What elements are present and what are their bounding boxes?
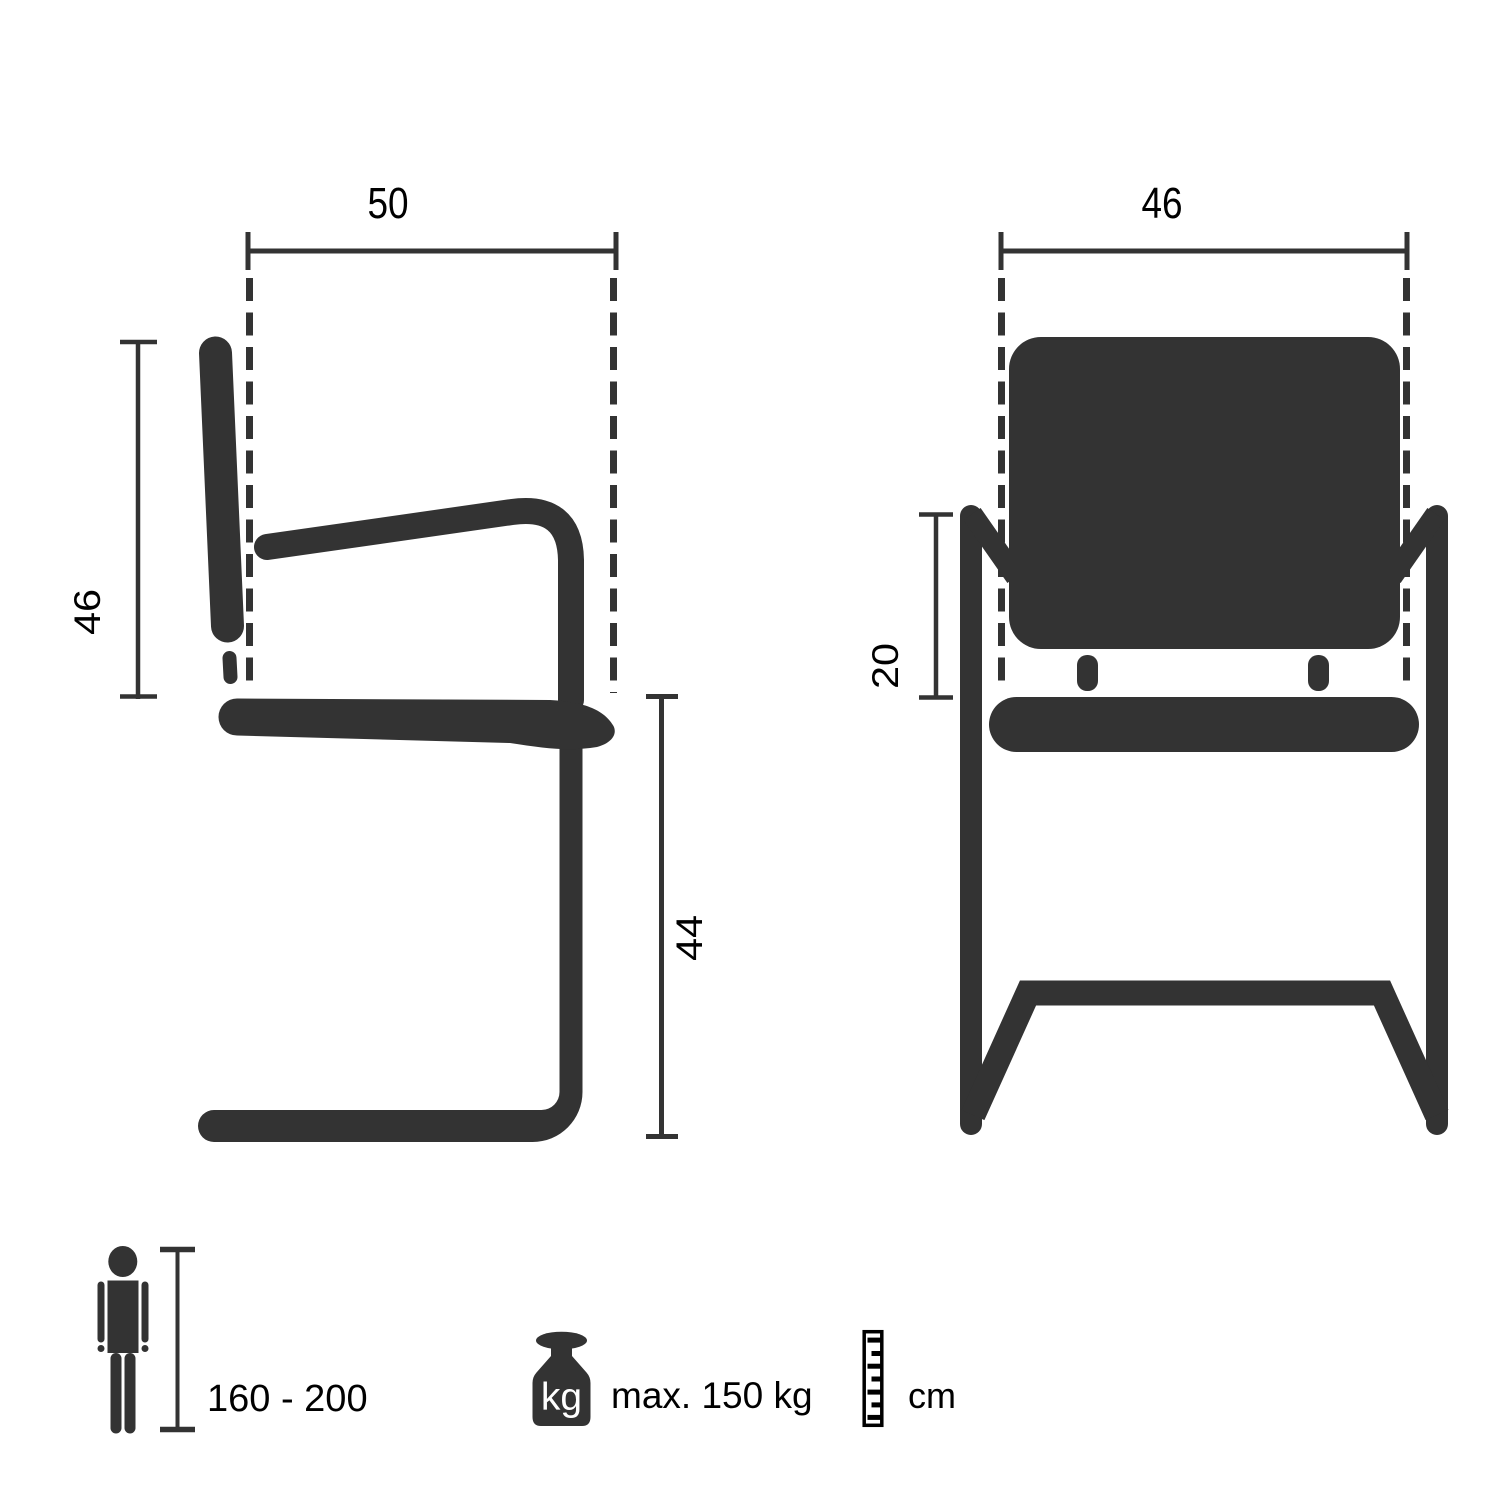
svg-text:kg: kg bbox=[541, 1376, 582, 1419]
svg-text:46: 46 bbox=[1141, 178, 1182, 228]
svg-text:46: 46 bbox=[67, 589, 108, 635]
svg-text:50: 50 bbox=[367, 178, 408, 228]
svg-text:cm: cm bbox=[908, 1375, 956, 1416]
svg-text:44: 44 bbox=[669, 915, 710, 961]
svg-text:20: 20 bbox=[865, 643, 906, 689]
svg-text:max. 150 kg: max. 150 kg bbox=[611, 1375, 813, 1416]
svg-text:160 - 200: 160 - 200 bbox=[207, 1378, 368, 1420]
